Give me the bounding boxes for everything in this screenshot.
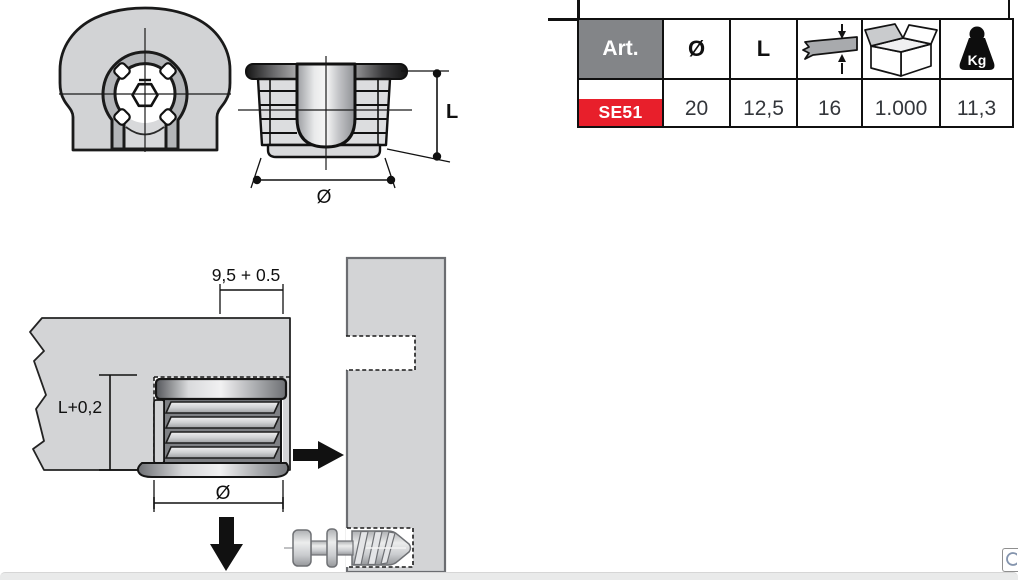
hole-diameter-dim-label: Ø bbox=[216, 483, 231, 504]
zoom-control-button[interactable] bbox=[1002, 548, 1018, 572]
drill-direction-arrow-icon bbox=[210, 517, 243, 571]
pack-quantity-column-header bbox=[862, 19, 940, 79]
magnifier-icon bbox=[1003, 549, 1017, 570]
kg-icon-label: Kg bbox=[967, 52, 986, 68]
kg-weight-icon: Kg bbox=[949, 25, 1005, 73]
product-table: Art. Ø L bbox=[577, 18, 1014, 128]
table-top-rule bbox=[548, 18, 579, 21]
diameter-value-cell: 20 bbox=[663, 79, 730, 127]
weight-column-header: Kg bbox=[940, 19, 1013, 79]
pack-quantity-box-icon bbox=[863, 20, 939, 78]
pack-quantity-value-cell: 1.000 bbox=[862, 79, 940, 127]
cabinet-side-panel bbox=[347, 258, 445, 572]
height-dimension: L bbox=[387, 69, 458, 162]
drilling-depth-dim-label: L+0,2 bbox=[58, 397, 102, 417]
cam-fitting-inserted bbox=[138, 379, 288, 477]
thickness-column-header bbox=[797, 19, 862, 79]
weight-value-cell: 11,3 bbox=[940, 79, 1013, 127]
length-column-header: L bbox=[730, 19, 797, 79]
page-grid-line-right bbox=[1008, 0, 1011, 20]
diameter-dimension: Ø bbox=[251, 158, 395, 208]
edge-distance-dimension: 9,5 + 0.5 bbox=[212, 265, 283, 314]
diameter-column-header: Ø bbox=[663, 19, 730, 79]
page-grid-line-left bbox=[577, 0, 580, 20]
hole-diameter-dimension: Ø bbox=[154, 480, 283, 512]
side-view-drawing: L Ø bbox=[238, 56, 458, 208]
installation-drawing: 9,5 + 0.5 L+0,2 Ø bbox=[30, 258, 445, 572]
catalog-page: L Ø bbox=[0, 0, 1018, 580]
diameter-dim-label: Ø bbox=[317, 187, 332, 208]
height-dim-label: L bbox=[446, 101, 458, 123]
edge-distance-dim-label: 9,5 + 0.5 bbox=[212, 265, 281, 285]
insert-direction-arrow-icon bbox=[293, 441, 344, 469]
article-code-cell: SE51 bbox=[578, 79, 663, 127]
bottom-window-edge bbox=[0, 572, 1018, 580]
front-view-drawing bbox=[59, 8, 231, 152]
length-value-cell: 12,5 bbox=[730, 79, 797, 127]
article-code-badge: SE51 bbox=[579, 99, 662, 126]
panel-thickness-icon bbox=[800, 21, 860, 77]
thickness-value-cell: 16 bbox=[797, 79, 862, 127]
art-column-header: Art. bbox=[578, 19, 663, 79]
